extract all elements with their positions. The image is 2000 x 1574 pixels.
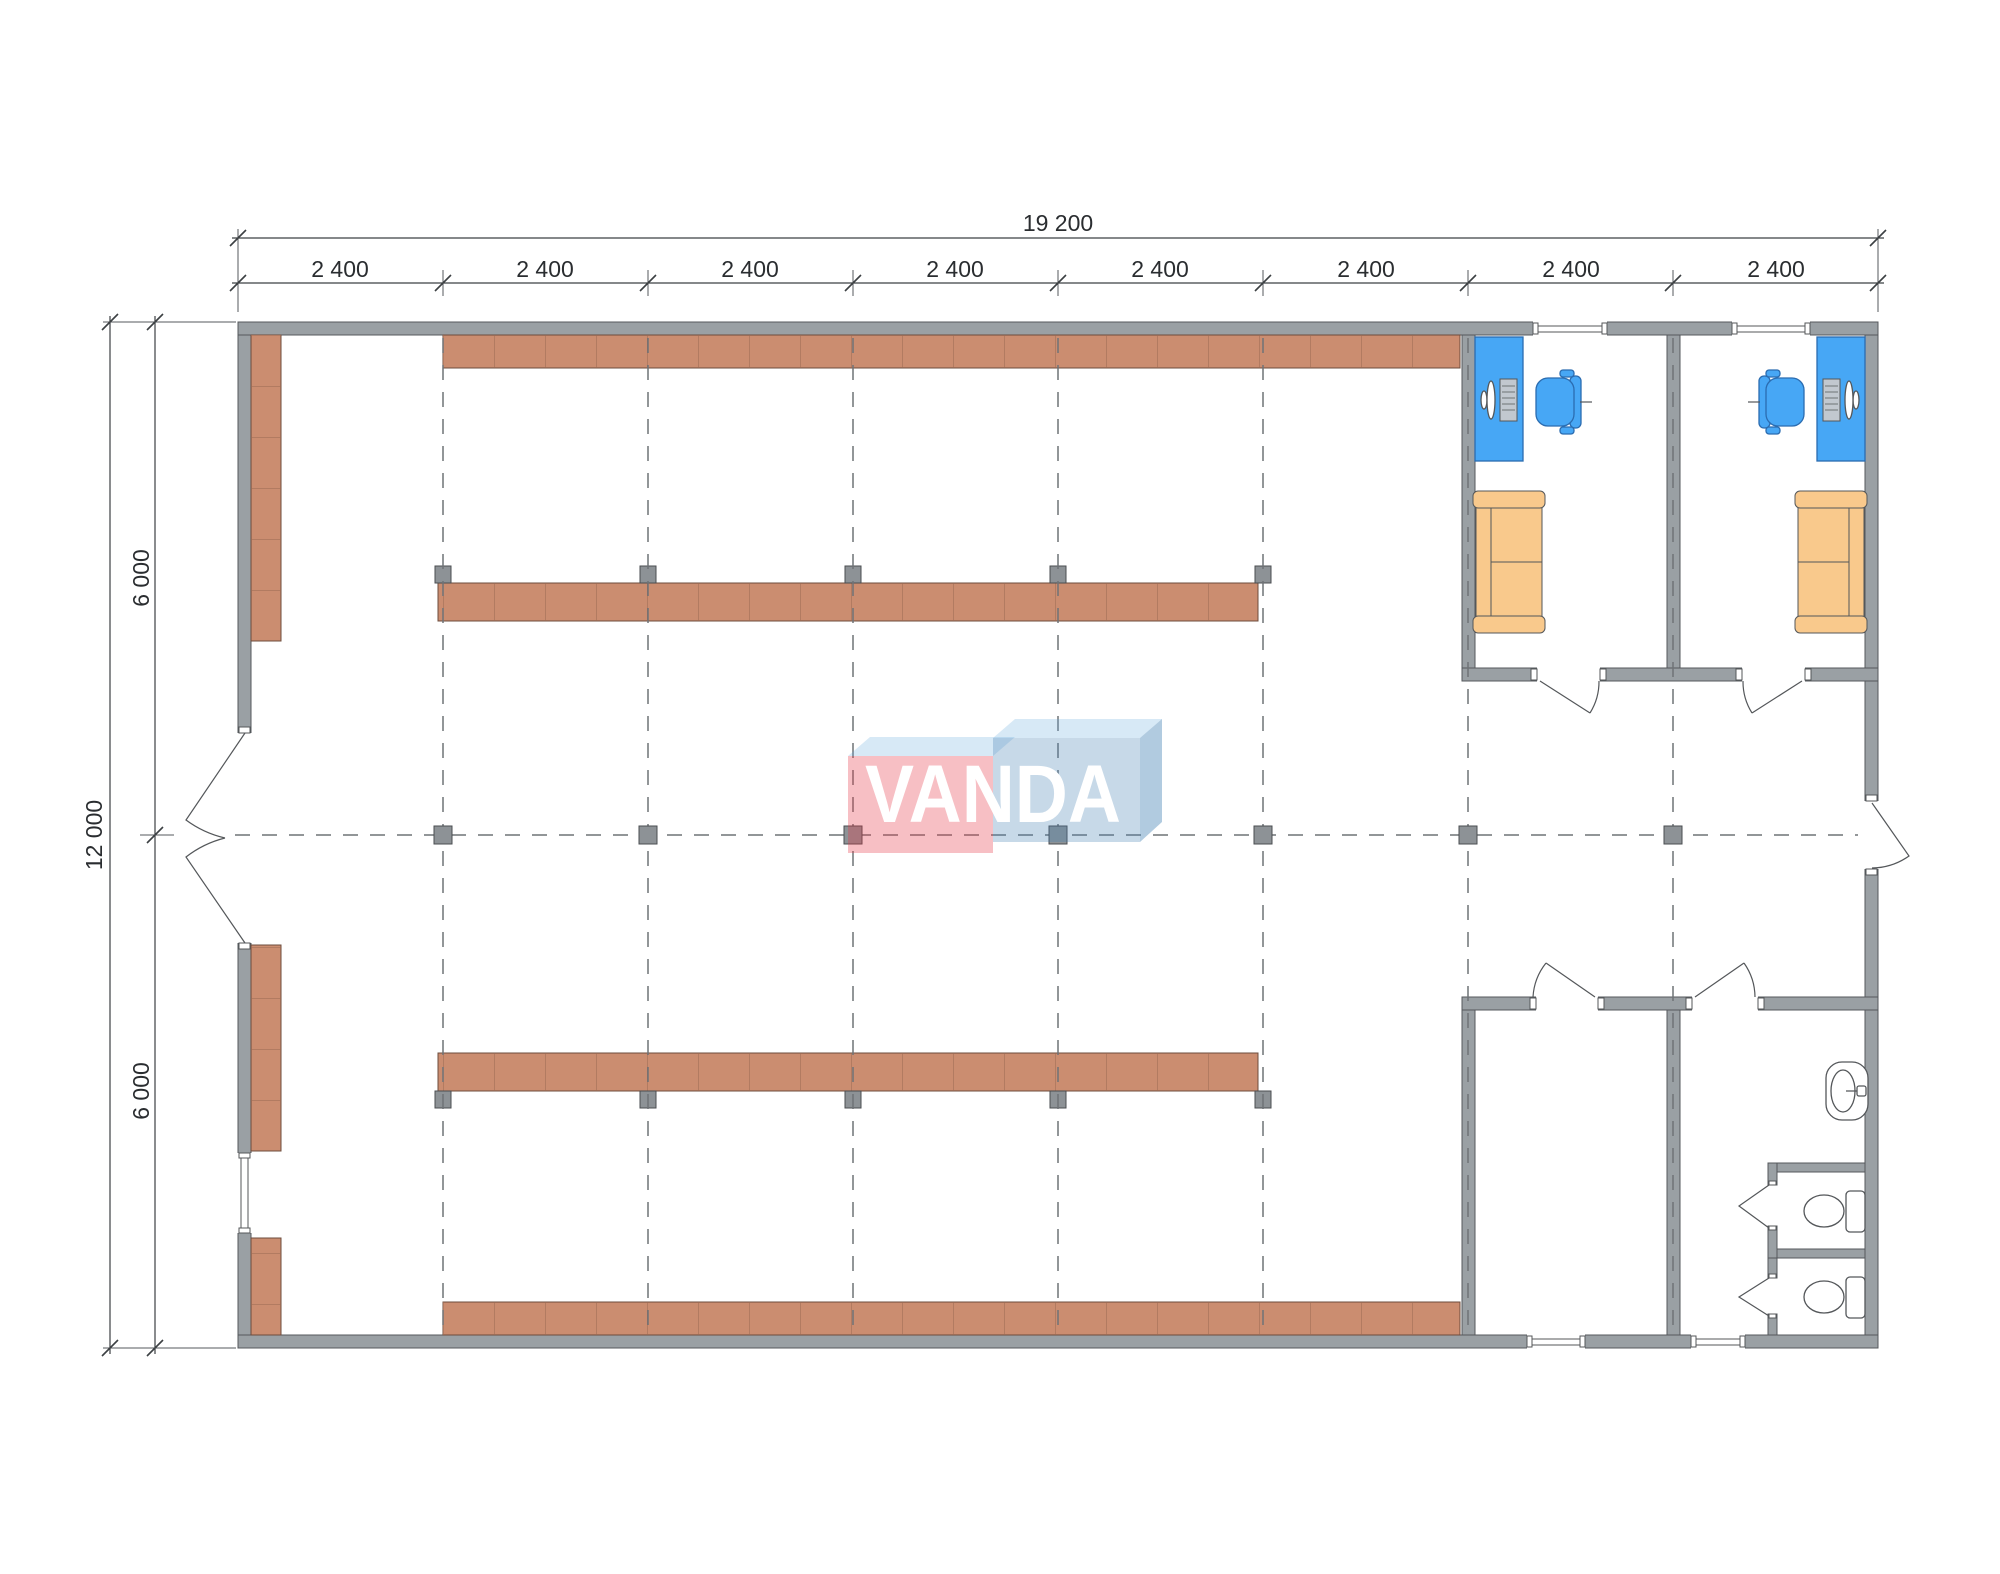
dim-bay: 2 400: [1747, 256, 1805, 282]
dim-bay: 2 400: [1337, 256, 1395, 282]
keyboard: [1500, 379, 1517, 421]
dim-bay: 2 400: [516, 256, 574, 282]
column: [1459, 826, 1477, 844]
toilet-2: [1804, 1277, 1865, 1318]
sofa-armrest: [1473, 616, 1545, 633]
office-chair-armrest: [1560, 427, 1574, 434]
shelf-left-wall-lower: [251, 1238, 281, 1335]
dim-bay: 2 400: [1131, 256, 1189, 282]
sofa-cushion: [1491, 506, 1542, 562]
sofa: [1473, 491, 1545, 633]
column: [434, 826, 452, 844]
door-office2: [1743, 681, 1802, 713]
opening-right-door: [1864, 801, 1879, 869]
monitor-screen: [1845, 381, 1853, 419]
toilet-bowl: [1804, 1195, 1844, 1227]
window-left: [239, 1153, 250, 1233]
wall-stall-partition-1: [1776, 1163, 1865, 1172]
sofa-back: [1849, 506, 1864, 618]
door-office1: [1540, 681, 1599, 713]
wall-stall-partition-2: [1776, 1249, 1865, 1258]
sofa-cushion: [1491, 562, 1542, 618]
shelf-left-wall-middle: [251, 945, 281, 1151]
toilet-bowl: [1804, 1281, 1844, 1313]
dim-half-height-bottom: 6 000: [128, 1062, 154, 1120]
office-1: [1473, 337, 1592, 633]
wall-bottomrooms-north: [1462, 997, 1878, 1010]
shelf-bottom-wall: [443, 1302, 1460, 1335]
blue-box-top-face: [993, 719, 1162, 738]
opening-wc-door: [1692, 996, 1758, 1011]
toilet-tank: [1846, 1277, 1865, 1318]
office-chair-armrest: [1560, 370, 1574, 377]
dim-bay: 2 400: [1542, 256, 1600, 282]
monitor-base: [1481, 391, 1487, 409]
wall-top: [238, 322, 1878, 335]
office-chair-armrest: [1766, 427, 1780, 434]
opening-entrance: [237, 733, 252, 943]
office-chair-armrest: [1766, 370, 1780, 377]
column: [1254, 826, 1272, 844]
column: [1664, 826, 1682, 844]
dim-bay: 2 400: [721, 256, 779, 282]
dim-bay: 2 400: [926, 256, 984, 282]
shelf-middle-upper: [438, 583, 1258, 621]
sofa: [1795, 491, 1867, 633]
wall-office-south: [1462, 668, 1878, 681]
sofa-cushion: [1798, 562, 1849, 618]
wall-stall-stub-2: [1768, 1226, 1777, 1258]
sofa-armrest: [1473, 491, 1545, 508]
office-chair-seat: [1766, 378, 1804, 426]
office-chair-seat: [1536, 378, 1574, 426]
opening-storeroom-door: [1536, 996, 1598, 1011]
faucet: [1857, 1086, 1866, 1096]
stall-door-2: [1739, 1278, 1769, 1316]
dim-half-height-top: 6 000: [128, 549, 154, 607]
blue-box-side-face: [1140, 719, 1162, 842]
column: [639, 826, 657, 844]
toilet-tank: [1846, 1191, 1865, 1232]
bathroom: [1739, 1062, 1868, 1318]
toilet-1: [1804, 1191, 1865, 1232]
watermark-text: VANDA: [865, 749, 1121, 840]
opening-office2-door: [1742, 667, 1805, 682]
floor-plan-drawing: VANDA 19 200 2 400 2 400 2 400 2 400 2 4…: [0, 0, 2000, 1574]
office-2: [1748, 337, 1867, 633]
floor-plan-page: VANDA 19 200 2 400 2 400 2 400 2 400 2 4…: [0, 0, 2000, 1574]
dim-total-width: 19 200: [1023, 210, 1093, 236]
sofa-cushion: [1798, 506, 1849, 562]
wall-bottom: [238, 1335, 1878, 1348]
monitor-base: [1853, 391, 1859, 409]
dim-bay: 2 400: [311, 256, 369, 282]
opening-office1-door: [1537, 667, 1600, 682]
monitor-screen: [1487, 381, 1495, 419]
door-storeroom: [1533, 963, 1595, 997]
sofa-back: [1476, 506, 1491, 618]
shelf-left-wall-upper: [251, 335, 281, 641]
dim-total-height: 12 000: [81, 800, 107, 870]
sofa-armrest: [1795, 491, 1867, 508]
shelf-middle-lower: [438, 1053, 1258, 1091]
sofa-armrest: [1795, 616, 1867, 633]
stall-door-1: [1739, 1185, 1769, 1228]
sink: [1826, 1062, 1868, 1120]
shelf-top-wall: [443, 335, 1460, 368]
entrance-double-door: [186, 733, 245, 943]
keyboard: [1823, 379, 1840, 421]
door-wc: [1695, 963, 1755, 997]
vanda-watermark: VANDA: [848, 719, 1162, 853]
